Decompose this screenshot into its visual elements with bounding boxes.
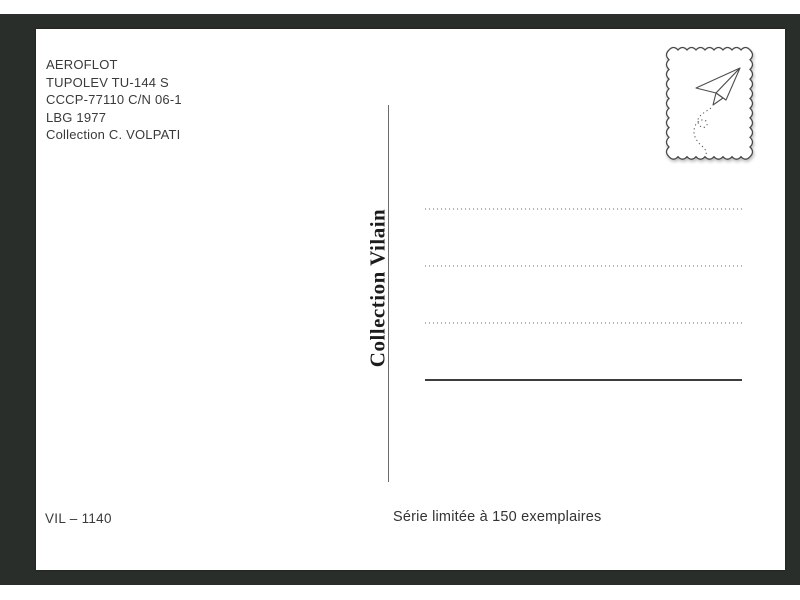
publisher-vertical-text: Collection Vilain	[366, 209, 391, 367]
address-line-dotted-1	[425, 208, 742, 210]
stamp-box	[662, 42, 757, 165]
caption-line-aircraft: TUPOLEV TU-144 S	[46, 74, 182, 92]
address-line-dotted-3	[425, 322, 742, 324]
photo-caption-block: AEROFLOT TUPOLEV TU-144 S CCCP-77110 C/N…	[46, 56, 182, 144]
caption-line-collection: Collection C. VOLPATI	[46, 126, 182, 144]
caption-line-airline: AEROFLOT	[46, 56, 182, 74]
caption-line-location-year: LBG 1977	[46, 109, 182, 127]
address-line-solid	[425, 379, 742, 381]
reference-number: VIL – 1140	[45, 511, 112, 526]
edition-note: Série limitée à 150 exemplaires	[393, 509, 602, 525]
dark-mat-background: AEROFLOT TUPOLEV TU-144 S CCCP-77110 C/N…	[0, 14, 800, 585]
caption-line-registration: CCCP-77110 C/N 06-1	[46, 91, 182, 109]
address-line-dotted-2	[425, 265, 742, 267]
postcard-back: AEROFLOT TUPOLEV TU-144 S CCCP-77110 C/N…	[36, 29, 785, 570]
paper-plane-icon	[662, 42, 757, 165]
